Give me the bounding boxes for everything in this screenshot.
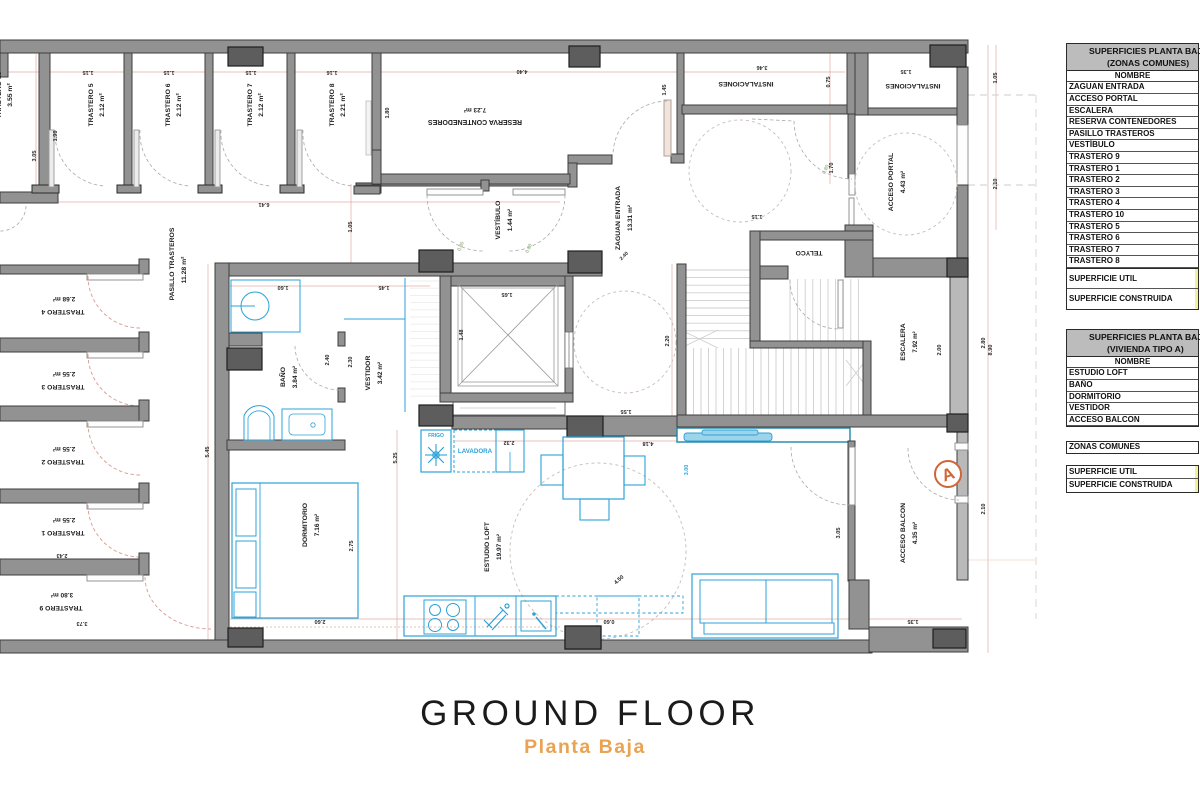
svg-text:2.40: 2.40 (619, 251, 630, 262)
svg-text:TRASTERO 9: TRASTERO 9 (39, 604, 82, 611)
svg-text:3.05: 3.05 (836, 528, 842, 539)
svg-text:19.97 m²: 19.97 m² (496, 533, 503, 560)
svg-text:TRASTERO 5: TRASTERO 5 (88, 83, 95, 126)
svg-text:TRASTERO 10: TRASTERO 10 (0, 71, 3, 118)
svg-text:ESTUDIO LOFT: ESTUDIO LOFT (484, 521, 491, 572)
svg-text:PASILLO TRASTEROS: PASILLO TRASTEROS (169, 227, 176, 300)
svg-text:1.35: 1.35 (901, 68, 912, 74)
svg-text:3.80 m²: 3.80 m² (50, 591, 73, 598)
svg-text:4.43 m²: 4.43 m² (900, 170, 907, 193)
svg-text:1.80: 1.80 (385, 108, 391, 119)
svg-text:2.00: 2.00 (937, 345, 943, 356)
svg-text:ACCESO PORTAL: ACCESO PORTAL (888, 153, 895, 211)
svg-text:RESERVA CONTENEDORES: RESERVA CONTENEDORES (428, 118, 522, 125)
svg-text:3.84 m²: 3.84 m² (292, 365, 299, 388)
svg-text:1.90: 1.90 (53, 131, 59, 142)
svg-text:1.45: 1.45 (379, 284, 390, 290)
svg-text:8.90: 8.90 (988, 345, 994, 356)
svg-text:2.60: 2.60 (315, 618, 326, 624)
svg-text:VESTÍBULO: VESTÍBULO (493, 201, 502, 240)
svg-text:TRASTERO 8: TRASTERO 8 (329, 83, 336, 126)
svg-text:2.40: 2.40 (325, 355, 331, 366)
svg-text:TELYCO: TELYCO (796, 249, 823, 256)
svg-text:4.40: 4.40 (517, 68, 528, 74)
svg-text:FRIGO: FRIGO (428, 433, 444, 439)
svg-text:4.18: 4.18 (643, 440, 654, 446)
svg-text:1.55: 1.55 (621, 408, 632, 414)
svg-text:1.60: 1.60 (278, 284, 289, 290)
svg-text:2.21 m²: 2.21 m² (340, 93, 347, 117)
svg-text:3.55 m²: 3.55 m² (7, 83, 14, 107)
svg-text:1.15: 1.15 (83, 69, 94, 75)
svg-text:INSTALACIONES: INSTALACIONES (885, 82, 940, 89)
svg-text:2.30: 2.30 (348, 357, 354, 368)
svg-text:1.35: 1.35 (908, 618, 919, 624)
svg-text:5.45: 5.45 (205, 447, 211, 458)
svg-text:2.12 m²: 2.12 m² (258, 93, 265, 117)
svg-text:LAVADORA: LAVADORA (458, 448, 493, 455)
svg-text:ZAGUAN ENTRADA: ZAGUAN ENTRADA (615, 186, 622, 250)
svg-text:3.42 m²: 3.42 m² (377, 361, 384, 384)
svg-text:2.80: 2.80 (981, 338, 987, 349)
svg-text:TRASTERO 6: TRASTERO 6 (165, 83, 172, 126)
svg-text:TRASTERO 4: TRASTERO 4 (41, 308, 84, 315)
svg-text:3.05: 3.05 (32, 151, 38, 162)
svg-text:1.65: 1.65 (502, 291, 513, 297)
svg-text:5.25: 5.25 (393, 453, 399, 464)
svg-text:2.12 m²: 2.12 m² (99, 93, 106, 117)
svg-text:4.35 m²: 4.35 m² (912, 521, 919, 544)
svg-text:TRASTERO 7: TRASTERO 7 (247, 83, 254, 126)
svg-text:2.55 m²: 2.55 m² (52, 516, 75, 523)
svg-text:0.75: 0.75 (826, 77, 832, 88)
svg-text:3.73: 3.73 (77, 620, 88, 626)
svg-text:3.46: 3.46 (757, 64, 768, 70)
svg-text:1.05: 1.05 (993, 73, 999, 84)
svg-text:ESCALERA: ESCALERA (900, 323, 907, 360)
svg-text:1.16: 1.16 (327, 69, 338, 75)
svg-text:2.10: 2.10 (993, 179, 999, 190)
svg-text:7.23 m²: 7.23 m² (463, 106, 486, 113)
svg-text:1.45: 1.45 (662, 85, 668, 96)
svg-text:11.28 m²: 11.28 m² (181, 256, 188, 284)
svg-text:VESTIDOR: VESTIDOR (365, 356, 372, 391)
svg-text:TRASTERO 3: TRASTERO 3 (41, 383, 84, 390)
svg-text:3.00: 3.00 (684, 465, 690, 476)
svg-text:TRASTERO 2: TRASTERO 2 (41, 458, 84, 465)
svg-text:2.32: 2.32 (504, 439, 515, 445)
svg-text:2.10: 2.10 (981, 504, 987, 515)
svg-text:2.68 m²: 2.68 m² (52, 295, 75, 302)
svg-text:2.55 m²: 2.55 m² (52, 370, 75, 377)
svg-text:0.60: 0.60 (604, 618, 615, 624)
svg-text:TRASTERO 1: TRASTERO 1 (41, 529, 84, 536)
svg-text:13.31 m²: 13.31 m² (627, 204, 634, 231)
svg-text:7.16 m²: 7.16 m² (314, 513, 321, 536)
svg-text:0.80: 0.80 (524, 243, 534, 255)
svg-text:2.55 m²: 2.55 m² (52, 445, 75, 452)
svg-text:2.75: 2.75 (349, 541, 355, 552)
svg-text:7.92 m²: 7.92 m² (912, 331, 919, 352)
svg-text:4.50: 4.50 (613, 574, 625, 586)
svg-text:6.41: 6.41 (259, 201, 270, 207)
svg-text:1.44 m²: 1.44 m² (507, 208, 514, 231)
svg-text:1.48: 1.48 (459, 330, 465, 341)
svg-text:1.15: 1.15 (164, 69, 175, 75)
svg-text:ACCESO BALCON: ACCESO BALCON (900, 503, 907, 563)
svg-text:2.12 m²: 2.12 m² (176, 93, 183, 117)
svg-text:INSTALACIONES: INSTALACIONES (718, 80, 773, 87)
svg-text:1.15: 1.15 (752, 213, 763, 219)
svg-text:1.15: 1.15 (246, 69, 257, 75)
svg-text:BAÑO: BAÑO (278, 367, 287, 387)
svg-text:1.05: 1.05 (348, 222, 354, 233)
svg-text:2.20: 2.20 (665, 336, 671, 347)
svg-text:0.80: 0.80 (456, 241, 466, 253)
svg-text:2.43: 2.43 (57, 552, 68, 558)
svg-text:DORMITORIO: DORMITORIO (302, 503, 309, 547)
